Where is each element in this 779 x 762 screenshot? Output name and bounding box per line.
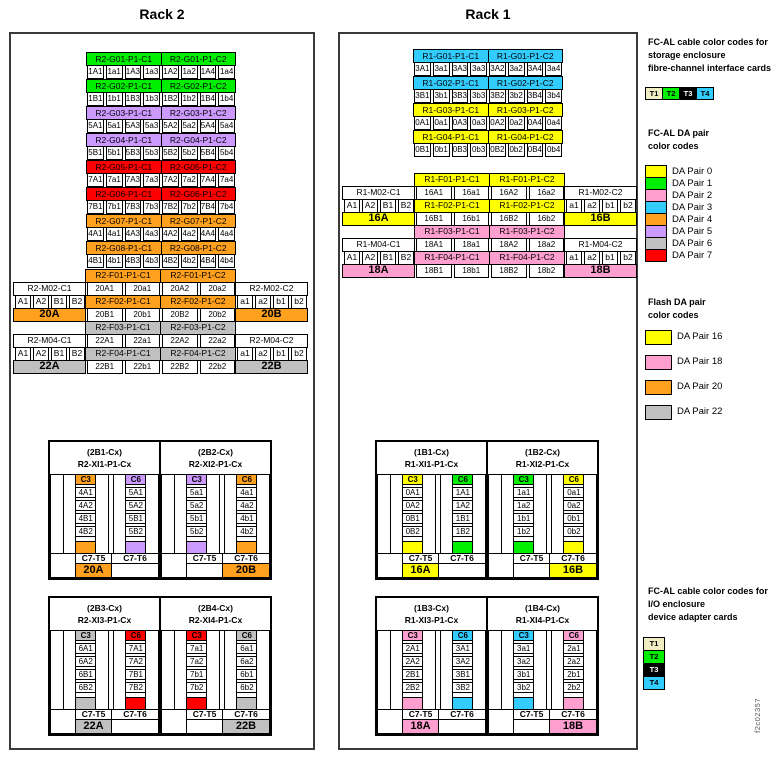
legend-text-line: FC-AL cable color codes for <box>648 585 768 598</box>
port-cell: A2 <box>33 347 49 361</box>
xi-body: C31a11a21b11b2C60a10a20b10b2 <box>488 475 597 554</box>
port-cell: 16a1 <box>454 186 490 200</box>
fc-card-header: R2-G08-P1-C1 <box>86 241 162 255</box>
fc-card-header: R2-G07-P1-C1 <box>86 214 162 228</box>
port-cell: 0A2 <box>489 116 506 130</box>
cable-color-card: T1 <box>645 87 663 100</box>
port-cell: 1A1 <box>87 65 104 79</box>
empty-slot-column <box>533 630 547 710</box>
port-cell: 0a3 <box>470 116 487 130</box>
port-cell: 7a3 <box>143 173 160 187</box>
port-cell: 0b2 <box>508 143 525 157</box>
port-cell: A2 <box>33 295 49 309</box>
da-pair-label: 22B <box>222 719 270 734</box>
port-cell: 20a1 <box>125 282 161 296</box>
port-cell: 4a1 <box>106 227 123 241</box>
port-cell: 1b2 <box>181 92 198 106</box>
port-cell: 4a2 <box>236 500 257 511</box>
card-port-row: 3A13a13A33a33A23a23A43a4 <box>413 63 563 76</box>
port-cell: 0b3 <box>470 143 487 157</box>
empty-slot-column <box>206 474 220 554</box>
port-cell: A2 <box>362 199 378 213</box>
card-header-row: R2-G04-P1-C1R2-G04-P1-C2 <box>86 133 236 147</box>
port-cell: 2B1 <box>402 669 423 680</box>
port-cell: 1B1 <box>452 513 473 524</box>
da-pair-name: DA Pair 22 <box>672 405 722 420</box>
card-header-row: R2-G07-P1-C1R2-G07-P1-C2 <box>86 214 236 228</box>
empty-slot-column <box>551 474 565 554</box>
da-pair-label: 22A <box>75 719 112 734</box>
port-cell: 18B2 <box>491 264 527 278</box>
card-port-row: 4A14a14A34a34A24a24A44a4 <box>86 228 236 241</box>
port-cell: 22b2 <box>200 360 236 374</box>
port-cell: 1B1 <box>87 92 104 106</box>
port-cell: A1 <box>15 295 31 309</box>
port-cell: 5b1 <box>186 513 207 524</box>
card-header-row: R2-G02-P1-C1R2-G02-P1-C2 <box>86 79 236 93</box>
card-port-row: 7B17b17B37b37B27b27B47b4 <box>86 201 236 214</box>
card-position-header: C6 <box>563 630 584 641</box>
port-cell: 0b2 <box>563 526 584 537</box>
legend-flash-pair-list: DA Pair 16DA Pair 18DA Pair 20DA Pair 22 <box>645 330 722 430</box>
legend-da-row: DA Pair 7 <box>645 249 712 262</box>
port-cell: 1B3 <box>125 92 142 106</box>
xi-slot-label: (2B2-Cx) <box>161 446 270 458</box>
empty-slot-column <box>390 630 404 710</box>
port-cell: 6B1 <box>75 669 96 680</box>
footer-column: C7-T6 <box>438 553 486 578</box>
port-cell: 4b2 <box>181 254 198 268</box>
port-cell: 1b1 <box>106 92 123 106</box>
footer-blank-cell <box>377 709 403 734</box>
xi-footer: C7-T520AC7-T6 <box>50 553 159 578</box>
xi-footer: C7-T518AC7-T6 <box>377 709 486 734</box>
empty-slot-column <box>551 630 565 710</box>
port-cell: 5b1 <box>106 146 123 160</box>
port-cell: 0A1 <box>402 487 423 498</box>
legend-text-line: device adapter cards <box>648 611 768 624</box>
xi-enclosure-box: (1B1-Cx)R1-XI1-P1-CxC30A10A20B10B2C61A11… <box>375 440 488 580</box>
footer-column: C7-T5 <box>513 553 550 578</box>
port-cell: 3a2 <box>513 656 534 667</box>
da-pair-label: 16A <box>402 563 439 578</box>
footer-empty-cell <box>438 563 486 578</box>
fc-card-header: R1-F03-P1-C2 <box>489 225 565 239</box>
rack1-da-mid-table: R1-F01-P1-C1R1-F01-P1-C2R1-M02-C116A116a… <box>343 174 637 278</box>
port-cell: a1 <box>237 295 253 309</box>
port-cell: 6a2 <box>236 656 257 667</box>
port-cell: b1 <box>273 295 289 309</box>
port-cell: 7b2 <box>181 200 198 214</box>
card-port-row: 7A17a17A37a37A27a27A47a4 <box>86 174 236 187</box>
legend-text-line: storage enclosure <box>648 49 771 62</box>
xi-port-column-c3: C30A10A20B10B2 <box>402 474 423 554</box>
port-cell: 18A2 <box>491 238 527 252</box>
empty-slot-column <box>488 630 502 710</box>
footer-column: C7-T518A <box>402 709 439 734</box>
da-pair-label: 18A <box>342 264 415 278</box>
empty-slot-column <box>206 630 220 710</box>
fc-card-header: R2-F02-P1-C1 <box>85 295 161 309</box>
xi-port-column-c6: C60a10a20b10b2 <box>563 474 584 554</box>
footer-column: C7-T522A <box>75 709 112 734</box>
port-cell: 3a1 <box>513 643 534 654</box>
port-cell: 7B4 <box>200 200 217 214</box>
empty-slot-column <box>440 474 454 554</box>
da-pair-label: 20A <box>13 308 86 322</box>
fc-card-header: R1-G01-P1-C2 <box>488 49 564 63</box>
port-cell: 6A1 <box>75 643 96 654</box>
fc-card-header: R2-G04-P1-C2 <box>161 133 237 147</box>
card-position-header: C6 <box>563 474 584 485</box>
fc-card-header: R2-G02-P1-C2 <box>161 79 237 93</box>
legend-storage-tcard-row: T1T2T3T4 <box>645 87 714 100</box>
port-cell: A2 <box>362 251 378 265</box>
empty-slot-column <box>161 474 175 554</box>
fc-card-header: R2-F03-P1-C1 <box>85 321 161 335</box>
empty-slot-column <box>174 474 188 554</box>
port-cell: 7A2 <box>125 656 146 667</box>
port-cell: A1 <box>344 199 360 213</box>
legend-flash-row: DA Pair 18 <box>645 355 722 370</box>
xi-port-column-c6: C63A13A23B13B2 <box>452 630 473 710</box>
card-position-header: C3 <box>402 474 423 485</box>
mc-card-label: R2-M02-C2 <box>235 282 308 296</box>
port-cell: 22B2 <box>162 360 198 374</box>
rack2-title: Rack 2 <box>9 6 315 22</box>
card-position-header: C6 <box>236 474 257 485</box>
port-cell: 5b3 <box>143 146 160 160</box>
fc-card-header: R1-G03-P1-C2 <box>488 103 564 117</box>
port-cell: 0B1 <box>402 513 423 524</box>
port-cell: b2 <box>291 347 307 361</box>
port-cell: 6a1 <box>236 643 257 654</box>
footer-column: C7-T5 <box>186 709 223 734</box>
port-cell: 7B1 <box>125 669 146 680</box>
da-pair-label: 16A <box>342 212 415 226</box>
port-cell: 4a1 <box>236 487 257 498</box>
fc-card-header: R2-F04-P1-C1 <box>85 347 161 361</box>
port-cell: 5a2 <box>186 500 207 511</box>
port-cell: 7b3 <box>143 200 160 214</box>
port-cell: 18b2 <box>529 264 565 278</box>
empty-slot-column <box>422 630 436 710</box>
footer-blank-cell <box>377 553 403 578</box>
xi-port-column-c6: C67A17A27B17B2 <box>125 630 146 710</box>
port-cell: B1 <box>51 295 67 309</box>
card-position-header: C3 <box>186 630 207 641</box>
fc-card-header: R2-G06-P1-C2 <box>161 187 237 201</box>
card-position-header: C3 <box>402 630 423 641</box>
port-cell: 7b2 <box>186 682 207 693</box>
empty-slot-column <box>583 474 597 554</box>
legend-text-line: Flash DA pair <box>648 296 706 309</box>
xi-enclosure-box: (1B3-Cx)R1-XI3-P1-CxC32A12A22B12B2C63A13… <box>375 596 488 736</box>
legend-storage-title: FC-AL cable color codes forstorage enclo… <box>648 36 771 75</box>
da-pair-label: 18B <box>549 719 597 734</box>
port-cell: 20A1 <box>87 282 123 296</box>
xi-card-label: R2-XI2-P1-Cx <box>161 458 270 470</box>
card-header-row: R1-G03-P1-C1R1-G03-P1-C2 <box>413 103 563 117</box>
port-cell: 3a1 <box>433 62 450 76</box>
cable-color-card: T4 <box>643 676 665 690</box>
footer-column: C7-T520A <box>75 553 112 578</box>
port-cell: 1b3 <box>143 92 160 106</box>
port-cell: a1 <box>237 347 253 361</box>
port-cell: 4A3 <box>125 227 142 241</box>
rack2-io-enclosure-pair-2: (2B3-Cx)R2-XI3-P1-CxC36A16A26B16B2C67A17… <box>48 596 272 736</box>
xi-title-block: (2B4-Cx)R2-XI4-P1-Cx <box>161 598 270 631</box>
xi-card-label: R1-XI2-P1-Cx <box>488 458 597 470</box>
port-cell: 3A1 <box>414 62 431 76</box>
port-cell: 4b2 <box>236 526 257 537</box>
xi-port-column-c3: C35a15a25b15b2 <box>186 474 207 554</box>
empty-slot-column <box>145 474 159 554</box>
port-cell: 5B1 <box>87 146 104 160</box>
port-cell: 5B4 <box>200 146 217 160</box>
xi-body: C35a15a25b15b2C64a14a24b14b2 <box>161 475 270 554</box>
fc-card-header: R2-F01-P1-C1 <box>85 269 161 283</box>
port-cell: 5B1 <box>125 513 146 524</box>
port-cell: 18A1 <box>416 238 452 252</box>
xi-body: C36A16A26B16B2C67A17A27B17B2 <box>50 631 159 710</box>
xi-slot-label: (2B1-Cx) <box>50 446 159 458</box>
card-position-header: C6 <box>125 630 146 641</box>
port-cell: 2B2 <box>402 682 423 693</box>
port-cell: b2 <box>620 199 636 213</box>
card-position-header: C6 <box>125 474 146 485</box>
port-cell: 4A1 <box>87 227 104 241</box>
port-cell: 1B2 <box>162 92 179 106</box>
empty-slot-column <box>377 630 391 710</box>
port-cell: 6b1 <box>236 669 257 680</box>
rack1-io-card-table: R1-G01-P1-C1R1-G01-P1-C23A13a13A33a33A23… <box>413 49 563 157</box>
rack2-box: R2-G01-P1-C1R2-G01-P1-C21A11a11A31a31A21… <box>9 32 315 750</box>
empty-slot-column <box>390 474 404 554</box>
empty-slot-column <box>50 630 64 710</box>
fc-card-header: R1-F02-P1-C1 <box>414 199 490 213</box>
fc-card-header: R1-G03-P1-C1 <box>413 103 489 117</box>
port-cell: 3B1 <box>452 669 473 680</box>
rack2-da-mid-table: R2-F01-P1-C1R2-F01-P1-C2R2-M02-C120A120a… <box>14 270 308 374</box>
port-cell: 18b1 <box>454 264 490 278</box>
port-cell: 7B2 <box>125 682 146 693</box>
xi-port-column-c3: C32A12A22B12B2 <box>402 630 423 710</box>
port-cell: 3b4 <box>545 89 562 103</box>
port-cell: 1b2 <box>513 526 534 537</box>
card-port-row: 1B11b11B31b31B21b21B41b4 <box>86 93 236 106</box>
port-cell: b1 <box>602 251 618 265</box>
cable-color-card: T3 <box>643 663 665 677</box>
port-cell: 5B2 <box>125 526 146 537</box>
port-cell: 4A1 <box>75 487 96 498</box>
empty-slot-column <box>224 474 238 554</box>
port-cell: 3B1 <box>414 89 431 103</box>
mc-card-label: R1-M04-C2 <box>564 238 637 252</box>
footer-column: C7-T620B <box>222 553 270 578</box>
empty-slot-column <box>488 474 502 554</box>
port-cell: 3A1 <box>452 643 473 654</box>
port-cell: 16B2 <box>491 212 527 226</box>
empty-slot-column <box>95 630 109 710</box>
empty-slot-column <box>256 474 270 554</box>
port-cell: 5b4 <box>218 146 235 160</box>
fc-card-header: R1-G04-P1-C1 <box>413 130 489 144</box>
empty-slot-column <box>501 474 515 554</box>
port-cell: 0A2 <box>402 500 423 511</box>
color-swatch <box>645 405 672 420</box>
port-cell: 7b1 <box>186 669 207 680</box>
port-cell: 5a1 <box>106 119 123 133</box>
xi-card-label: R1-XI4-P1-Cx <box>488 614 597 626</box>
port-cell: 7b4 <box>218 200 235 214</box>
port-cell: 6B2 <box>75 682 96 693</box>
xi-title-block: (2B3-Cx)R2-XI3-P1-Cx <box>50 598 159 631</box>
mc-card-label: R1-M02-C1 <box>342 186 415 200</box>
legend-text-line: color codes <box>648 140 709 153</box>
footer-empty-cell <box>186 719 223 734</box>
color-swatch <box>645 330 672 345</box>
xi-port-column-c6: C66a16a26b16b2 <box>236 630 257 710</box>
port-cell: 4A2 <box>162 227 179 241</box>
xi-slot-label: (2B3-Cx) <box>50 602 159 614</box>
port-cell: 2a1 <box>563 643 584 654</box>
card-position-header: C3 <box>513 630 534 641</box>
cabling-diagram-canvas: Rack 2 Rack 1 R2-G01-P1-C1R2-G01-P1-C21A… <box>0 0 779 762</box>
port-cell: 1A2 <box>162 65 179 79</box>
card-header-row: R2-G06-P1-C1R2-G06-P1-C2 <box>86 187 236 201</box>
port-cell: 4b1 <box>236 513 257 524</box>
xi-enclosure-box: (1B4-Cx)R1-XI4-P1-CxC33a13a23b13b2C62a12… <box>486 596 599 736</box>
xi-enclosure-box: (2B1-Cx)R2-XI1-P1-CxC34A14A24B14B2C65A15… <box>48 440 161 580</box>
port-cell: 18a1 <box>454 238 490 252</box>
rack1-box: R1-G01-P1-C1R1-G01-P1-C23A13a13A33a33A23… <box>338 32 638 750</box>
port-cell: B2 <box>69 347 85 361</box>
fc-card-header: R1-F01-P1-C1 <box>414 173 490 187</box>
port-cell: 0a2 <box>563 500 584 511</box>
port-cell: 5A2 <box>162 119 179 133</box>
xi-card-label: R2-XI3-P1-Cx <box>50 614 159 626</box>
xi-body: C33a13a23b13b2C62a12a22b12b2 <box>488 631 597 710</box>
da-pair-label: 16B <box>564 212 637 226</box>
fc-card-header: R1-G02-P1-C2 <box>488 76 564 90</box>
empty-slot-column <box>50 474 64 554</box>
footer-column: C7-T6 <box>111 553 159 578</box>
empty-slot-column <box>224 630 238 710</box>
mc-card-label: R1-M02-C2 <box>564 186 637 200</box>
xi-port-column-c6: C62a12a22b12b2 <box>563 630 584 710</box>
port-cell: 16b2 <box>529 212 565 226</box>
port-cell: 18a2 <box>529 238 565 252</box>
footer-empty-cell <box>186 563 223 578</box>
mc-card-label: R2-M04-C1 <box>13 334 86 348</box>
empty-slot-column <box>501 630 515 710</box>
port-cell: 0b1 <box>563 513 584 524</box>
port-cell: 2A2 <box>402 656 423 667</box>
empty-slot-column <box>422 474 436 554</box>
port-cell: 1a2 <box>181 65 198 79</box>
fc-card-header: R2-F01-P1-C2 <box>160 269 236 283</box>
card-port-row: 0A10a10A30a30A20a20A40a4 <box>413 117 563 130</box>
card-port-row: 5A15a15A35a35A25a25A45a4 <box>86 120 236 133</box>
footer-empty-cell <box>111 563 159 578</box>
xi-footer: C7-T5C7-T618B <box>488 709 597 734</box>
port-cell: 22B1 <box>87 360 123 374</box>
port-cell: 7A4 <box>200 173 217 187</box>
card-header-row: R2-G05-P1-C1R2-G05-P1-C2 <box>86 160 236 174</box>
empty-slot-column <box>145 630 159 710</box>
port-cell: B2 <box>398 199 414 213</box>
port-cell: 5a3 <box>143 119 160 133</box>
port-cell: B1 <box>380 251 396 265</box>
empty-slot-column <box>440 630 454 710</box>
port-cell: 3A2 <box>452 656 473 667</box>
port-cell: 2b2 <box>563 682 584 693</box>
port-cell: 7A2 <box>162 173 179 187</box>
da-pair-name: DA Pair 7 <box>667 249 712 262</box>
port-cell: 16A2 <box>491 186 527 200</box>
xi-enclosure-box: (2B4-Cx)R2-XI4-P1-CxC37a17a27b17b2C66a16… <box>159 596 272 736</box>
port-cell: b1 <box>602 199 618 213</box>
port-cell: 5A3 <box>125 119 142 133</box>
port-cell: 7A1 <box>125 643 146 654</box>
card-port-row: 4B14b14B34b34B24b24B44b4 <box>86 255 236 268</box>
port-cell: 1A3 <box>125 65 142 79</box>
port-cell: 3B2 <box>489 89 506 103</box>
port-cell: 20B2 <box>162 308 198 322</box>
port-cell: 0B4 <box>527 143 544 157</box>
port-cell: 3B4 <box>527 89 544 103</box>
port-cell: 3A4 <box>527 62 544 76</box>
card-header-row: R2-G08-P1-C1R2-G08-P1-C2 <box>86 241 236 255</box>
port-cell: 7a2 <box>186 656 207 667</box>
port-cell: 2A1 <box>402 643 423 654</box>
cable-color-card: T4 <box>696 87 714 100</box>
card-port-row: 5B15b15B35b35B25b25B45b4 <box>86 147 236 160</box>
port-cell: 7a4 <box>218 173 235 187</box>
xi-card-label: R2-XI1-P1-Cx <box>50 458 159 470</box>
port-cell: 7a1 <box>186 643 207 654</box>
port-cell: 4B2 <box>75 526 96 537</box>
port-cell: 1a4 <box>218 65 235 79</box>
da-pair-label: 22B <box>235 360 308 374</box>
fc-card-header: R2-F04-P1-C2 <box>160 347 236 361</box>
xi-port-column-c3: C33a13a23b13b2 <box>513 630 534 710</box>
port-cell: 1a1 <box>513 487 534 498</box>
port-cell: 3a4 <box>545 62 562 76</box>
port-cell: 4a2 <box>181 227 198 241</box>
fc-card-header: R2-G07-P1-C2 <box>161 214 237 228</box>
port-cell: 16A1 <box>416 186 452 200</box>
port-cell: 5a1 <box>186 487 207 498</box>
port-cell: 4a3 <box>143 227 160 241</box>
port-cell: 18B1 <box>416 264 452 278</box>
port-cell: 0A1 <box>414 116 431 130</box>
port-cell: 1A2 <box>452 500 473 511</box>
footer-column: C7-T6 <box>438 709 486 734</box>
port-cell: 5A1 <box>87 119 104 133</box>
xi-port-column-c3: C36A16A26B16B2 <box>75 630 96 710</box>
port-cell: B1 <box>380 199 396 213</box>
port-cell: 20b1 <box>125 308 161 322</box>
footer-empty-cell <box>111 719 159 734</box>
port-cell: a1 <box>566 251 582 265</box>
fc-card-header: R2-G03-P1-C2 <box>161 106 237 120</box>
port-cell: a1 <box>566 199 582 213</box>
port-cell: 0A3 <box>452 116 469 130</box>
port-cell: 7B1 <box>87 200 104 214</box>
card-header-row: R2-G03-P1-C1R2-G03-P1-C2 <box>86 106 236 120</box>
